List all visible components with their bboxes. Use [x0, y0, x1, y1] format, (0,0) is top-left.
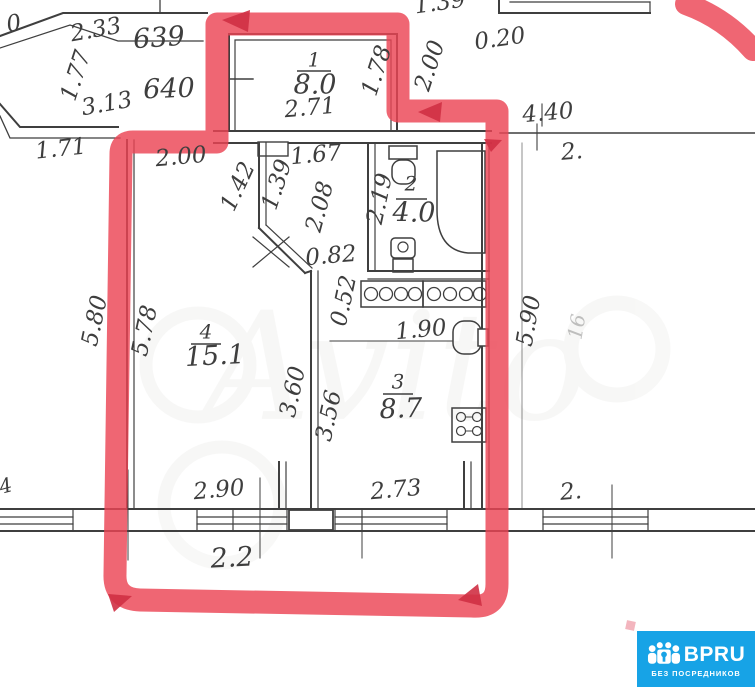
room2-number: 2	[404, 172, 418, 196]
room2-area: 4.0	[392, 198, 436, 229]
red-corner-mark-top-right	[686, 4, 753, 50]
dim-2-33: 2.33	[67, 13, 123, 48]
scan-artifact	[625, 620, 636, 631]
dim-3-13: 3.13	[79, 87, 134, 121]
dim-2-73: 2.73	[368, 475, 422, 505]
dim-2-90: 2.90	[191, 475, 245, 505]
dim-2-cut-bottom: 2.	[558, 478, 583, 506]
dim-1-67: 1.67	[289, 140, 343, 170]
bathtub	[437, 151, 485, 253]
bpru-brand-text: BPRU	[684, 644, 746, 665]
dim-1-39-cut-top: 1.39	[413, 0, 467, 19]
room3-number: 3	[392, 370, 405, 394]
dim-4-cut-left: 4	[0, 472, 15, 499]
room1-number: 1	[308, 48, 321, 72]
floorplan-image: Avito	[0, 0, 755, 687]
bpru-tagline: БЕЗ ПОСРЕДНИКОВ	[651, 670, 740, 678]
bpru-badge: BPRU БЕЗ ПОСРЕДНИКОВ	[637, 631, 755, 687]
dim-2-08: 2.08	[301, 179, 340, 236]
dim-cut-0: 0	[4, 10, 23, 38]
dim-4-40: 4.40	[520, 98, 574, 128]
dim-0-82: 0.82	[304, 241, 357, 271]
dim-2-2: 2.2	[209, 541, 255, 574]
dim-1-71: 1.71	[34, 133, 88, 164]
dim-2-00-right: 2.00	[409, 37, 450, 95]
room4-area: 15.1	[184, 339, 246, 373]
room3-area: 8.7	[379, 393, 424, 426]
dim-0-20: 0.20	[473, 23, 527, 56]
dim-2-00-hall: 2.00	[153, 142, 207, 172]
dim-2-71: 2.71	[282, 93, 336, 123]
dim-2-cut-right: 2.	[559, 138, 584, 166]
wash-basin	[391, 238, 415, 272]
dim-5-78: 5.78	[127, 303, 163, 359]
dim-1-90: 1.90	[394, 315, 447, 345]
unit-639: 639	[132, 21, 186, 56]
faint-16: 16	[562, 312, 590, 342]
unit-640: 640	[143, 73, 196, 106]
dim-1-42: 1.42	[215, 158, 260, 215]
bpru-people-key-icon	[647, 641, 681, 668]
